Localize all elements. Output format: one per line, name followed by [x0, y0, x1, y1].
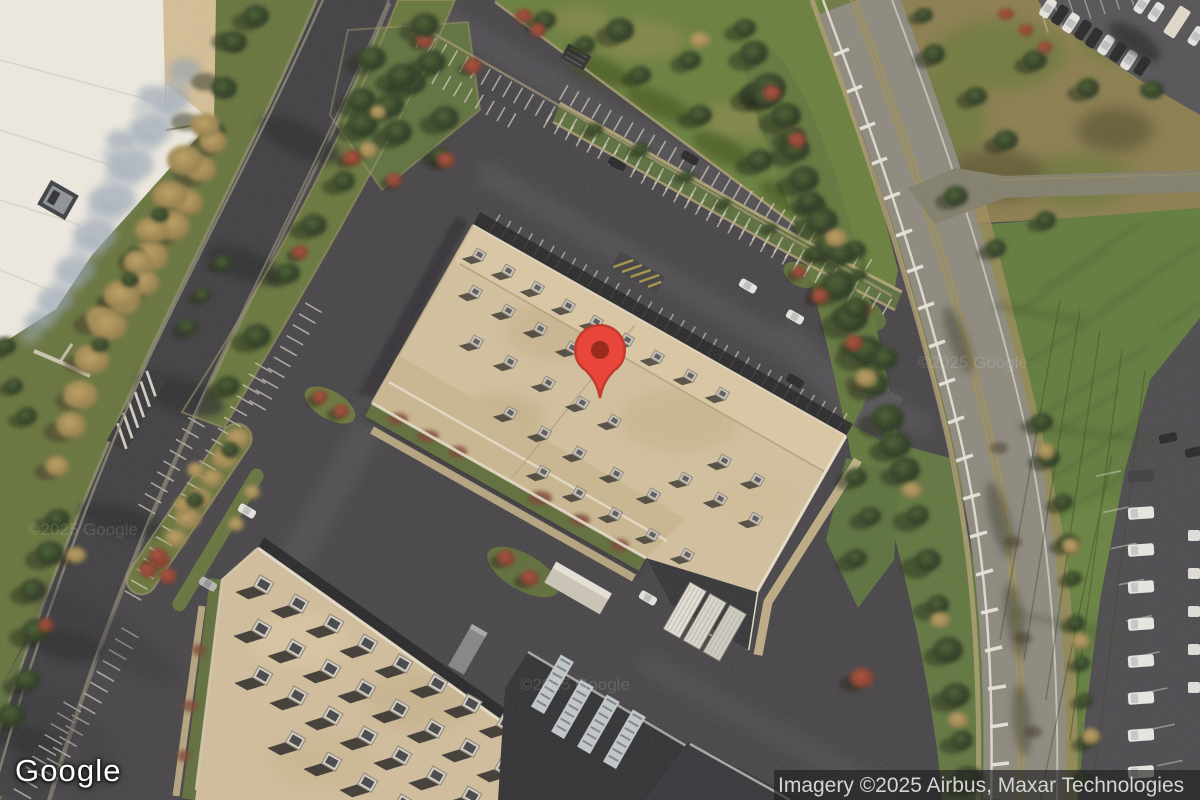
svg-text:©2025 Google: ©2025 Google [918, 353, 1028, 372]
svg-text:©2025 Google: ©2025 Google [28, 520, 138, 539]
svg-text:©2025 Google: ©2025 Google [520, 675, 630, 694]
